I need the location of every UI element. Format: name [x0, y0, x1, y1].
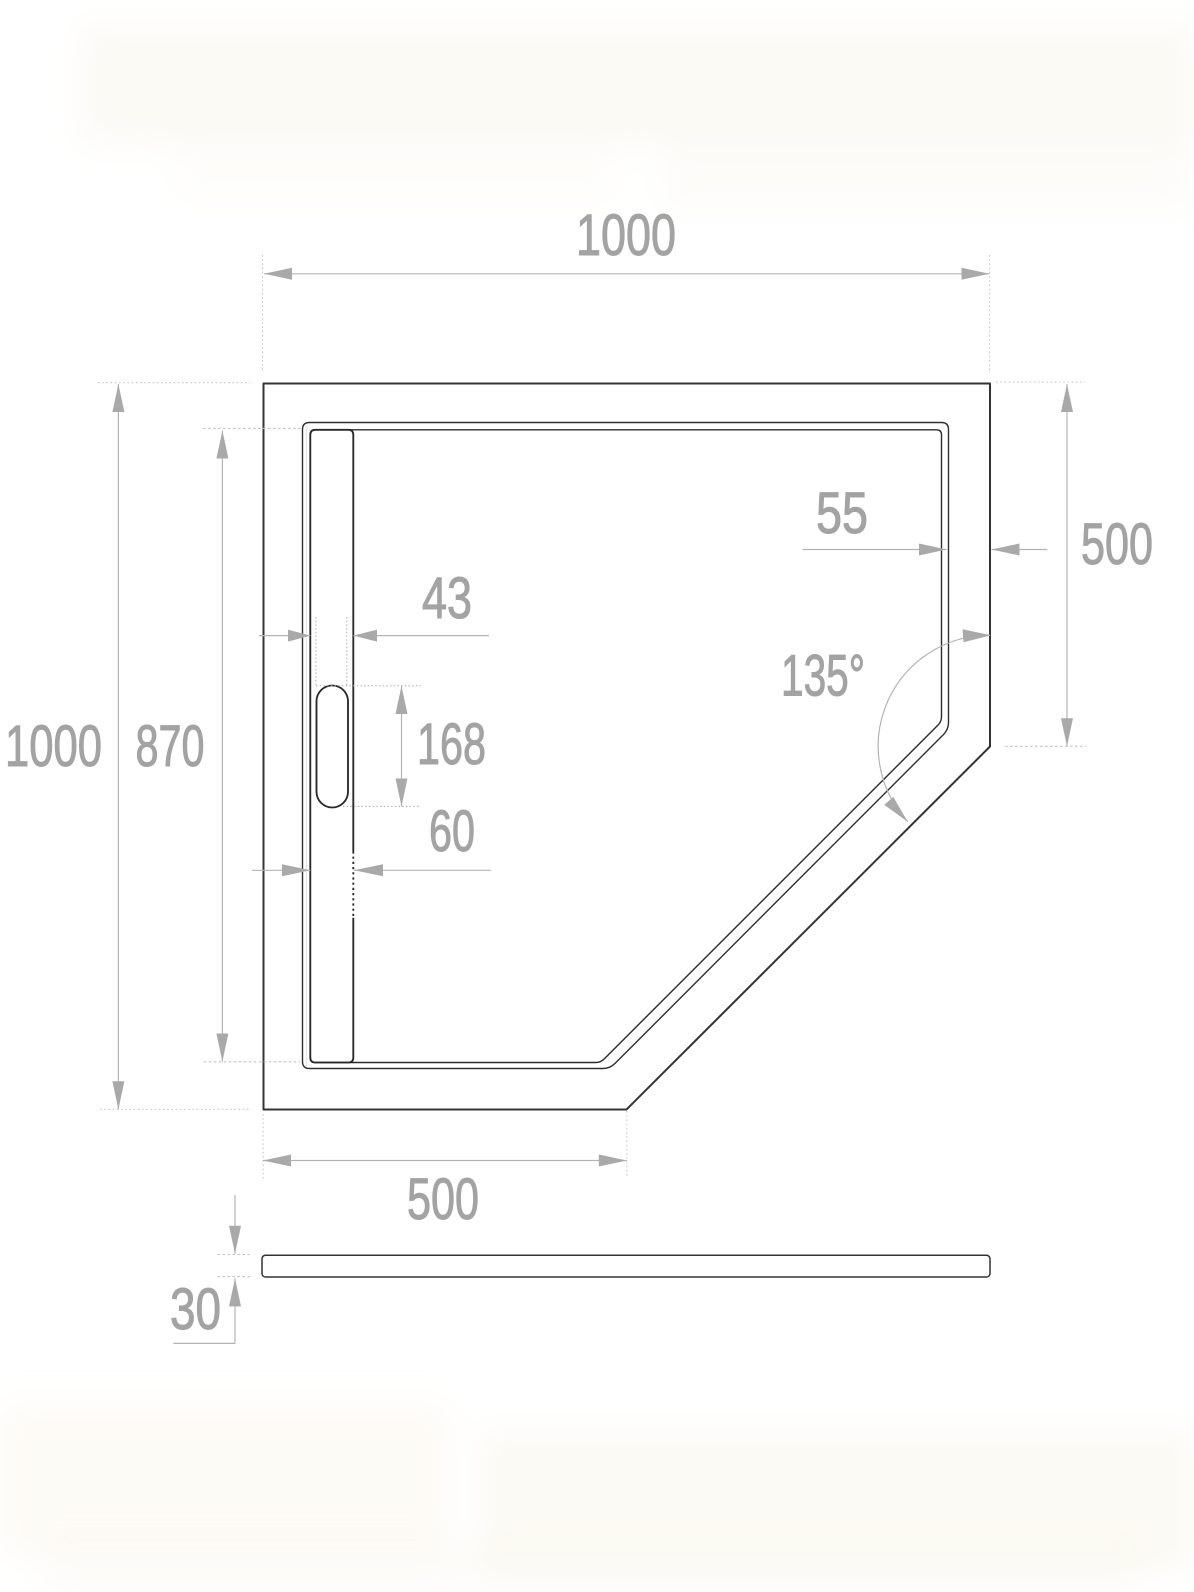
svg-text:30: 30 [170, 1277, 221, 1342]
svg-text:43: 43 [422, 566, 472, 631]
svg-text:500: 500 [407, 1167, 479, 1232]
svg-text:1000: 1000 [5, 714, 102, 779]
svg-text:500: 500 [1081, 512, 1153, 577]
svg-text:1000: 1000 [576, 203, 676, 268]
svg-text:55: 55 [816, 481, 868, 546]
svg-text:168: 168 [417, 712, 486, 777]
svg-text:135°: 135° [781, 644, 865, 709]
svg-text:60: 60 [429, 799, 475, 864]
svg-text:870: 870 [136, 714, 205, 779]
